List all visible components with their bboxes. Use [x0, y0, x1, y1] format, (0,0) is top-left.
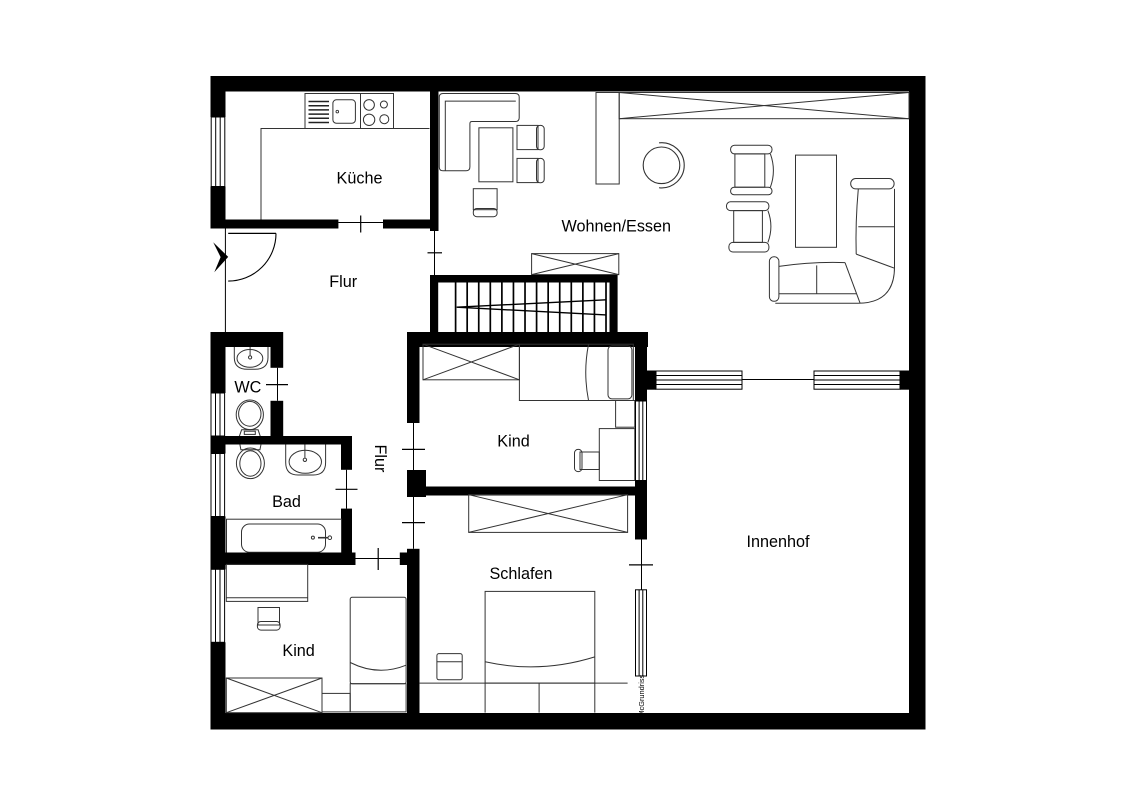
- svg-text:Küche: Küche: [337, 170, 383, 188]
- svg-text:Flur: Flur: [371, 444, 389, 472]
- svg-text:Kind: Kind: [282, 642, 314, 660]
- svg-text:Kind: Kind: [497, 432, 529, 450]
- svg-text:Flur: Flur: [329, 273, 357, 291]
- svg-text:WC: WC: [234, 379, 261, 397]
- svg-text:Wohnen/Essen: Wohnen/Essen: [562, 217, 672, 235]
- svg-text:Bad: Bad: [272, 493, 301, 511]
- svg-text:Schlafen: Schlafen: [490, 565, 553, 583]
- svg-text:McGrundriss: McGrundriss: [637, 674, 646, 716]
- svg-text:Innenhof: Innenhof: [746, 533, 810, 551]
